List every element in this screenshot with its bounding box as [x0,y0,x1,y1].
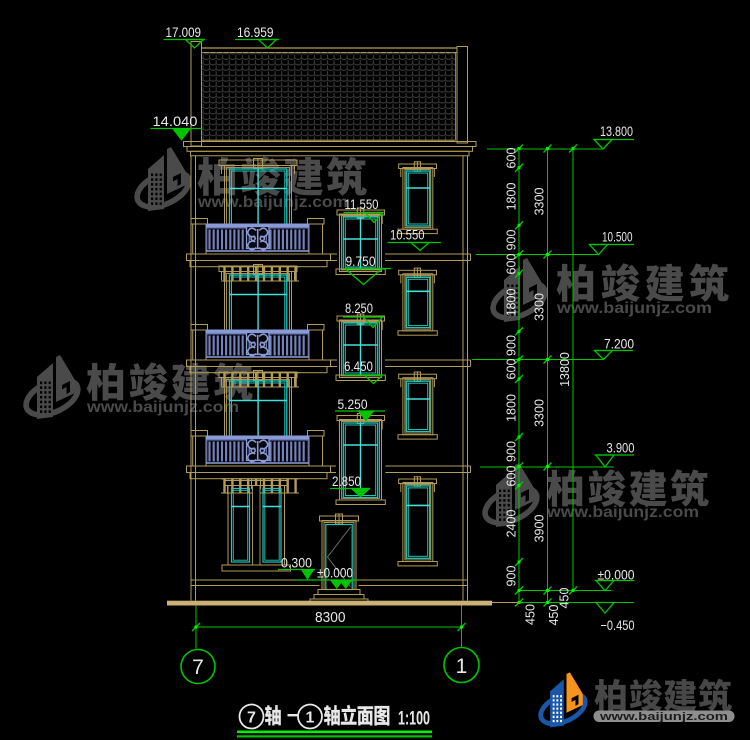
svg-text:7.200: 7.200 [604,337,634,352]
svg-text:11.550: 11.550 [345,197,379,212]
svg-text:3.900: 3.900 [607,441,635,456]
svg-text:0.300: 0.300 [281,556,312,571]
svg-text:www.baijunjz.com: www.baijunjz.com [197,194,348,211]
svg-text:8.250: 8.250 [345,301,373,316]
svg-text:3300: 3300 [533,188,547,216]
svg-text:13800: 13800 [558,352,572,387]
svg-text:900: 900 [505,335,519,356]
svg-text:1800: 1800 [505,289,519,317]
svg-text:2.850: 2.850 [332,474,361,489]
svg-text:450: 450 [524,604,538,625]
svg-text:www.baijunjz.com: www.baijunjz.com [556,300,712,317]
svg-text:10.500: 10.500 [602,230,633,245]
svg-text:6.450: 6.450 [344,359,373,374]
svg-text:600: 600 [505,359,519,380]
svg-text:8300: 8300 [315,610,346,626]
svg-text:www.baijunjz.com: www.baijunjz.com [86,399,239,416]
svg-text:1: 1 [306,710,315,727]
svg-text:www.baijunjz.com: www.baijunjz.com [546,504,699,521]
svg-text:±0.000: ±0.000 [317,566,353,581]
svg-text:600: 600 [505,466,519,487]
svg-text:1800: 1800 [505,183,519,211]
svg-text:−0.450: −0.450 [601,618,635,633]
svg-text:900: 900 [505,441,519,462]
svg-text:3900: 3900 [533,515,547,543]
svg-text:14.040: 14.040 [153,114,198,129]
svg-text:3300: 3300 [533,399,547,427]
svg-text:600: 600 [505,254,519,275]
svg-text:1:100: 1:100 [398,709,430,730]
svg-text:7: 7 [192,656,204,679]
svg-text:10.550: 10.550 [390,228,425,243]
svg-text:5.250: 5.250 [338,397,368,412]
svg-text:7: 7 [247,710,256,727]
svg-text:17.009: 17.009 [166,25,202,40]
svg-text:16.959: 16.959 [237,25,274,40]
svg-text:3300: 3300 [533,293,547,321]
svg-text:9.750: 9.750 [346,254,376,269]
svg-text:1800: 1800 [505,394,519,422]
svg-text:900: 900 [505,230,519,251]
svg-text:13.800: 13.800 [600,124,633,139]
svg-text:2400: 2400 [505,510,519,538]
svg-text:600: 600 [505,148,519,169]
svg-text:900: 900 [505,566,519,587]
svg-text:www.baijunjz.com: www.baijunjz.com [599,711,729,723]
svg-text:450: 450 [558,588,572,609]
svg-text:1: 1 [456,655,468,678]
